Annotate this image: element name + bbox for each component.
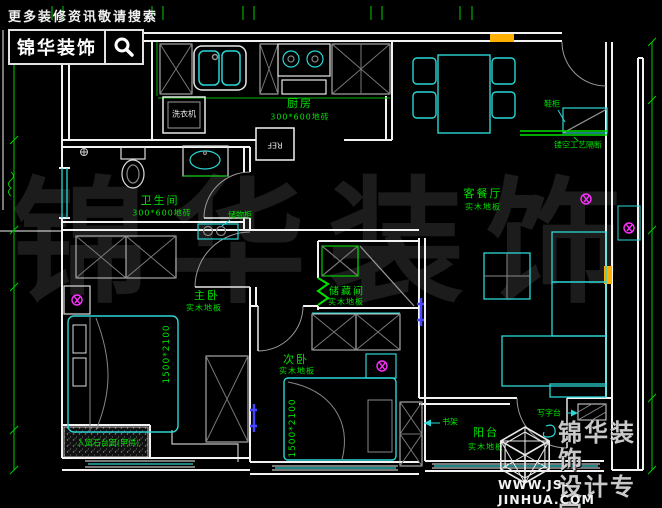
second-bed-size-label: 1500*2100 — [288, 398, 298, 457]
washing-machine-label: 洗衣机 — [172, 109, 196, 120]
search-icon[interactable] — [104, 31, 142, 63]
bookshelf-label: 书架 — [442, 417, 458, 428]
search-tagline: 更多装修资讯敬请搜索 — [8, 6, 158, 25]
bottom-branding: 锦华装饰 设计专家 WWW.JS-JINHUA.COM — [492, 420, 660, 504]
room-label-storage: 储藏间 — [329, 283, 365, 298]
material-label-living-dining: 实木地板 — [465, 202, 501, 213]
room-label-kitchen: 厨房 — [287, 95, 313, 111]
storage-cabinet-label: 储物柜 — [228, 210, 252, 221]
material-label-bathroom: 300*600地砖 — [132, 208, 192, 219]
footer-website: WWW.JS-JINHUA.COM — [498, 477, 660, 507]
material-label-storage: 实木地板 — [328, 297, 364, 308]
brand-name: 锦华装饰 — [10, 31, 104, 63]
desk-label: 写字台 — [537, 408, 561, 419]
master-bed-size-label: 1500*2100 — [162, 324, 172, 383]
shoe-cabinet-label: 鞋柜 — [544, 99, 560, 110]
material-label-second-bedroom: 实木地板 — [279, 366, 315, 377]
material-label-master-bedroom: 实木地板 — [186, 303, 222, 314]
stone-countertop-label: 人造石台面(甲供) — [77, 438, 139, 449]
room-label-bathroom: 卫生间 — [141, 192, 180, 208]
brand-search-box[interactable]: 锦华装饰 — [8, 29, 144, 65]
fridge-label: REF — [267, 141, 282, 150]
room-label-living-dining: 客餐厅 — [464, 185, 503, 201]
partition-label: 镂空工艺隔断 — [554, 140, 602, 151]
room-label-master-bedroom: 主卧 — [194, 287, 220, 303]
material-label-kitchen: 300*600地砖 — [270, 112, 330, 123]
floorplan-screenshot: 锦华装饰 — [0, 0, 662, 508]
top-branding: 更多装修资讯敬请搜索 锦华装饰 — [8, 6, 158, 65]
footer-brand-name: 锦华装饰 — [558, 420, 660, 474]
